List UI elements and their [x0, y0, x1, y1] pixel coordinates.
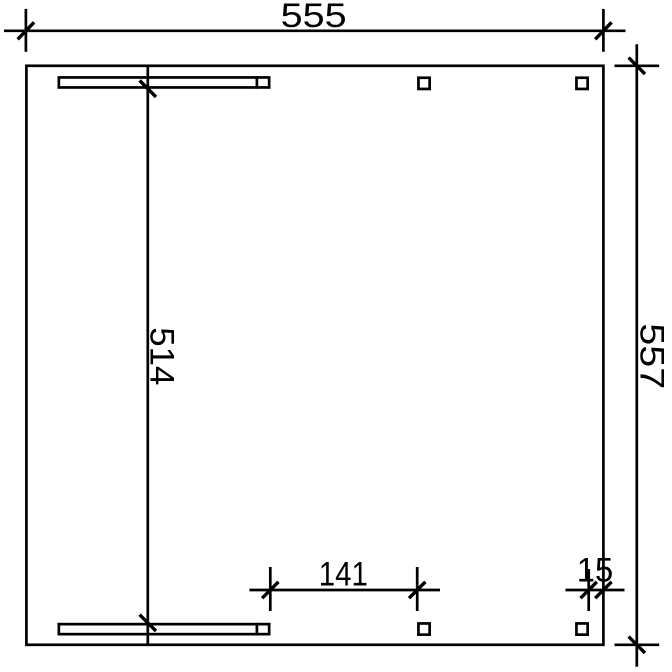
svg-text:141: 141 [319, 556, 368, 594]
svg-text:15: 15 [577, 552, 614, 590]
svg-text:557: 557 [633, 323, 671, 389]
svg-text:555: 555 [281, 0, 347, 35]
svg-text:514: 514 [143, 327, 181, 385]
